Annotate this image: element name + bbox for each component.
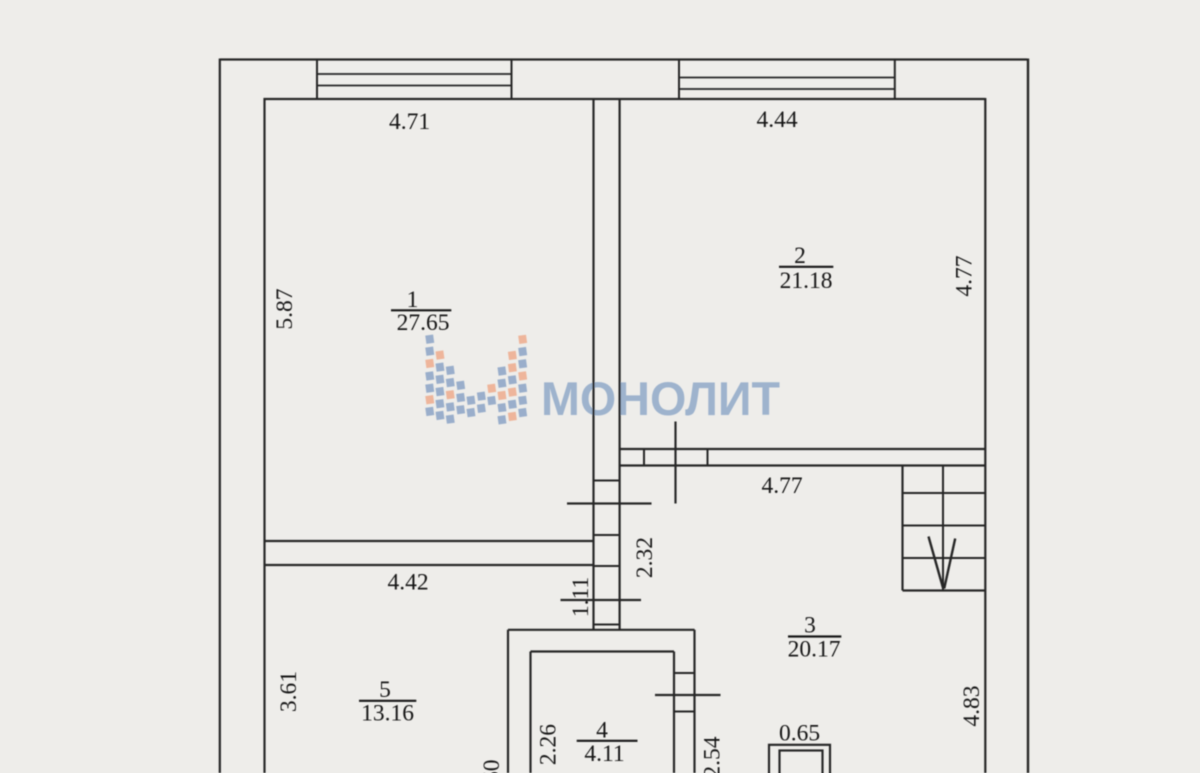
svg-text:3: 3: [804, 613, 816, 639]
svg-text:4.83: 4.83: [959, 685, 985, 726]
svg-text:4.44: 4.44: [756, 107, 797, 133]
svg-text:2: 2: [794, 243, 806, 269]
svg-text:2.54: 2.54: [700, 736, 726, 773]
svg-text:5: 5: [379, 677, 391, 703]
svg-text:13.16: 13.16: [361, 701, 414, 727]
svg-text:3.61: 3.61: [276, 671, 302, 712]
svg-text:4.42: 4.42: [387, 570, 428, 596]
svg-text:21.18: 21.18: [780, 268, 833, 294]
svg-text:5.87: 5.87: [272, 288, 298, 329]
svg-text:4.77: 4.77: [952, 255, 978, 296]
svg-text:0.65: 0.65: [779, 721, 820, 747]
svg-text:2.26: 2.26: [536, 724, 562, 765]
svg-text:1.50: 1.50: [479, 759, 505, 773]
svg-text:МОНОЛИТ: МОНОЛИТ: [541, 372, 780, 425]
svg-text:4: 4: [596, 718, 608, 744]
svg-text:1.11: 1.11: [568, 577, 594, 617]
svg-text:20.17: 20.17: [788, 637, 841, 663]
svg-text:27.65: 27.65: [397, 310, 450, 336]
svg-text:4.11: 4.11: [584, 741, 624, 767]
svg-text:4.71: 4.71: [389, 109, 430, 135]
svg-text:2.32: 2.32: [632, 537, 658, 578]
svg-text:4.77: 4.77: [761, 473, 802, 499]
